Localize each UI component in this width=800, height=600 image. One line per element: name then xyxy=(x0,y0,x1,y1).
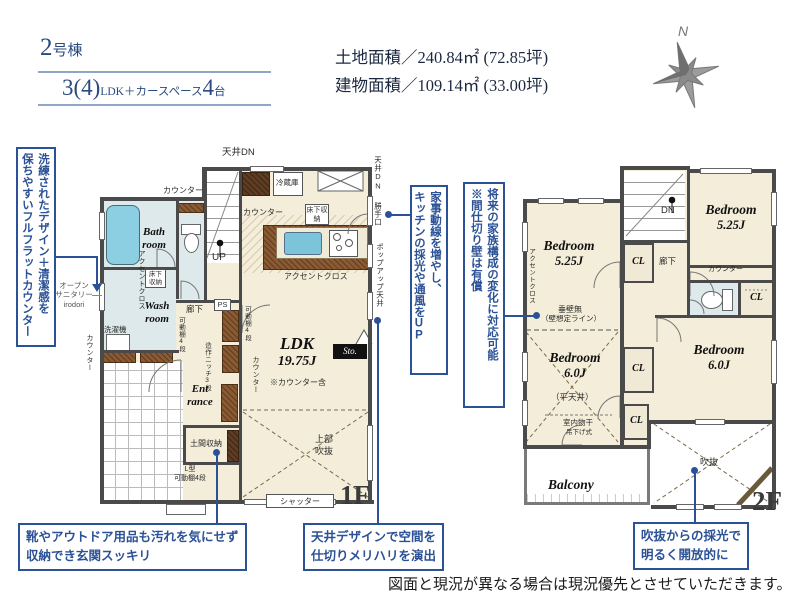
callout-line xyxy=(505,315,536,317)
window xyxy=(522,400,528,426)
compass-icon: N xyxy=(628,20,748,120)
bedroom-ne-label: Bedroom 5.25J xyxy=(698,202,764,232)
wall xyxy=(523,445,651,449)
ldk-note: ※カウンター含 xyxy=(270,378,326,387)
counter-label: カウンター xyxy=(708,266,743,274)
window xyxy=(676,504,704,510)
closet-label: CL xyxy=(741,292,772,304)
porch-step xyxy=(166,504,206,515)
window xyxy=(367,292,373,320)
side-door-label-v: 勝手口 xyxy=(374,202,382,238)
popup-ceiling-label-v: ポップアップ天井 xyxy=(376,243,384,327)
callout-line xyxy=(56,256,98,258)
layout-title: 3(4)LDK＋カースペース4台 xyxy=(62,75,226,101)
kitchen-sink xyxy=(284,232,322,255)
counter-label-v: カウンター xyxy=(252,356,259,404)
area-info: 土地面積／240.84㎡ (72.85坪) 建物面積／109.14㎡ (33.0… xyxy=(335,44,548,100)
kitchen-side-door xyxy=(367,196,373,226)
refrigerator-label: 冷蔵庫 xyxy=(276,179,299,188)
no-wall-label: 垂壁無 xyxy=(558,305,582,314)
drying-label: 室内物干 xyxy=(563,419,593,428)
callout-dot xyxy=(533,312,540,319)
callout-line xyxy=(391,214,410,216)
balcony-wall xyxy=(524,502,650,505)
building-title: 2号棟 xyxy=(40,34,83,62)
shelf-doma xyxy=(227,430,239,462)
wall xyxy=(204,170,207,300)
wall xyxy=(239,170,242,265)
closet-label: CL xyxy=(623,256,654,268)
balcony-wall xyxy=(647,449,650,505)
building-suffix: 号棟 xyxy=(53,43,83,59)
counter-label-v: カウンター xyxy=(86,334,93,378)
layout-number: 3(4) xyxy=(62,75,100,100)
callout-line xyxy=(377,323,379,523)
acc-cloth-label: アクセントクロス xyxy=(284,272,348,281)
ceiling-dn-label: 天井DN xyxy=(222,148,255,159)
underfloor-storage-label: 床下収納 xyxy=(305,204,329,225)
open-sanitary-label: オープン サニタリー irodori xyxy=(52,281,96,309)
stairs-2f xyxy=(624,171,685,241)
balcony-wall xyxy=(524,449,527,505)
wall xyxy=(176,199,179,299)
building-number: 2 xyxy=(40,34,53,61)
bedroom-se-label: Bedroom 6.0J xyxy=(686,342,752,372)
callout-flat-counter: 洗練されたデザイン＋清潔感を 保ちやすいフルフラットカウンター xyxy=(16,147,56,347)
callout-fukinuke: 吹抜からの採光で 明るく開放的に xyxy=(633,522,749,570)
balcony-label: Balcony xyxy=(548,477,594,493)
counter-label: カウンター xyxy=(163,186,203,195)
assumed-wall-label: （壁想定ライン） xyxy=(541,315,601,324)
callout-line xyxy=(216,455,218,523)
acc-cloth-label-v: アクセントクロス xyxy=(527,248,534,312)
underfloor-storage-label: 床下収納 xyxy=(145,269,166,288)
floor-1f-label: 1F xyxy=(340,480,370,511)
bedroom-sw-label: Bedroom 6.0J xyxy=(542,350,608,380)
l-shelf-label: L型 可動棚4段 xyxy=(166,465,214,483)
layout-text: LDK＋カースペース xyxy=(100,86,202,98)
shutter-label: シャッター xyxy=(266,494,334,508)
wall xyxy=(183,425,186,465)
hallway-label: 廊下 xyxy=(186,305,203,315)
stairs-dn-label: DN xyxy=(661,206,675,217)
wall xyxy=(690,280,772,283)
wall xyxy=(183,425,240,428)
window xyxy=(700,168,752,174)
wall xyxy=(100,197,206,201)
counter-label: カウンター xyxy=(243,208,283,217)
window xyxy=(771,192,777,226)
kitchen-pantry xyxy=(242,172,270,196)
window xyxy=(367,244,373,268)
compass-north-label: N xyxy=(678,23,689,39)
layout-count: 4 xyxy=(203,75,215,100)
doma-storage-label: 土間収納 xyxy=(190,439,222,448)
callout-partition: 将来の家族構成の変化に対応可能 ※間仕切り壁は有償 xyxy=(463,182,505,408)
closet-label: CL xyxy=(623,363,654,375)
window xyxy=(695,419,725,425)
floorplan-page: 2号棟 3(4)LDK＋カースペース4台 土地面積／240.84㎡ (72.85… xyxy=(0,0,800,600)
wall xyxy=(202,167,372,171)
pointer-line xyxy=(92,295,102,296)
window xyxy=(714,504,742,510)
storage-label: Sto. xyxy=(333,344,367,359)
void-label: 吹抜 xyxy=(700,457,718,467)
window xyxy=(250,166,284,172)
callout-line xyxy=(694,473,696,522)
void-above-label: 上部 吹抜 xyxy=(306,434,342,457)
window xyxy=(578,198,604,204)
stairs-up-label: UP xyxy=(212,252,226,264)
wall xyxy=(100,350,179,353)
wall xyxy=(687,169,690,318)
window xyxy=(99,212,105,240)
wall xyxy=(655,315,772,318)
pipe-space-label: PS xyxy=(214,299,231,311)
disclaimer: 図面と現況が異なる場合は現況優先とさせていただきます。 xyxy=(388,573,792,594)
callout-kaji-dousen: 家事動線を増やし、 キッチンの採光や通風をUP xyxy=(410,185,448,375)
drying-sub-label: 吊下げ式 xyxy=(566,429,592,436)
shelf-niche xyxy=(222,345,239,373)
balcony-rail-hatch xyxy=(527,494,647,502)
callout-ceiling: 天井デザインで空間を 仕切りメリハリを演出 xyxy=(303,523,444,571)
closet-label: CL xyxy=(621,415,652,427)
window xyxy=(771,340,777,384)
window xyxy=(538,198,564,204)
bathroom-label: Bath room xyxy=(137,226,171,251)
building-area: 建物面積／109.14㎡ (33.00坪) xyxy=(335,72,548,100)
floor-2f-label: 2F xyxy=(752,486,782,517)
callout-arrow xyxy=(92,284,102,292)
toilet-counter xyxy=(178,203,204,213)
toilet-2f-tank xyxy=(722,289,733,311)
layout-unit: 台 xyxy=(214,86,226,98)
window xyxy=(522,352,528,382)
shelf-hall xyxy=(222,310,239,342)
header-rule-1 xyxy=(38,71,271,73)
bedroom-nw-label: Bedroom 5.25J xyxy=(536,238,602,268)
callout-genkan: 靴やアウトドア用品も汚れを気にせず 収納でき玄関スッキリ xyxy=(18,523,247,571)
land-area: 土地面積／240.84㎡ (72.85坪) xyxy=(335,44,548,72)
shelf-entrance xyxy=(221,384,238,422)
kitchen-stove xyxy=(329,230,358,257)
bathtub xyxy=(106,205,140,265)
header-rule-2 xyxy=(38,104,271,106)
wall xyxy=(620,166,690,170)
washer-label: 洗濯機 xyxy=(104,326,127,335)
washroom-label: Wash room xyxy=(140,300,174,325)
wall xyxy=(176,300,242,303)
ldk-label: LDK 19.75J xyxy=(272,334,322,370)
ceiling-dn-label-v: 天井DN xyxy=(374,156,382,208)
callout-line xyxy=(96,256,98,284)
wall xyxy=(239,265,242,504)
window xyxy=(367,425,373,481)
stairs-1f xyxy=(207,171,239,263)
hallway-label: 廊下 xyxy=(659,257,676,267)
shelf-label-v: 可動棚4段 xyxy=(177,317,184,359)
entrance-label: Ent rance xyxy=(180,383,220,408)
flat-ceiling-label: （平天井） xyxy=(551,393,594,403)
shelf-label-v: 可動棚4段 xyxy=(243,306,250,348)
